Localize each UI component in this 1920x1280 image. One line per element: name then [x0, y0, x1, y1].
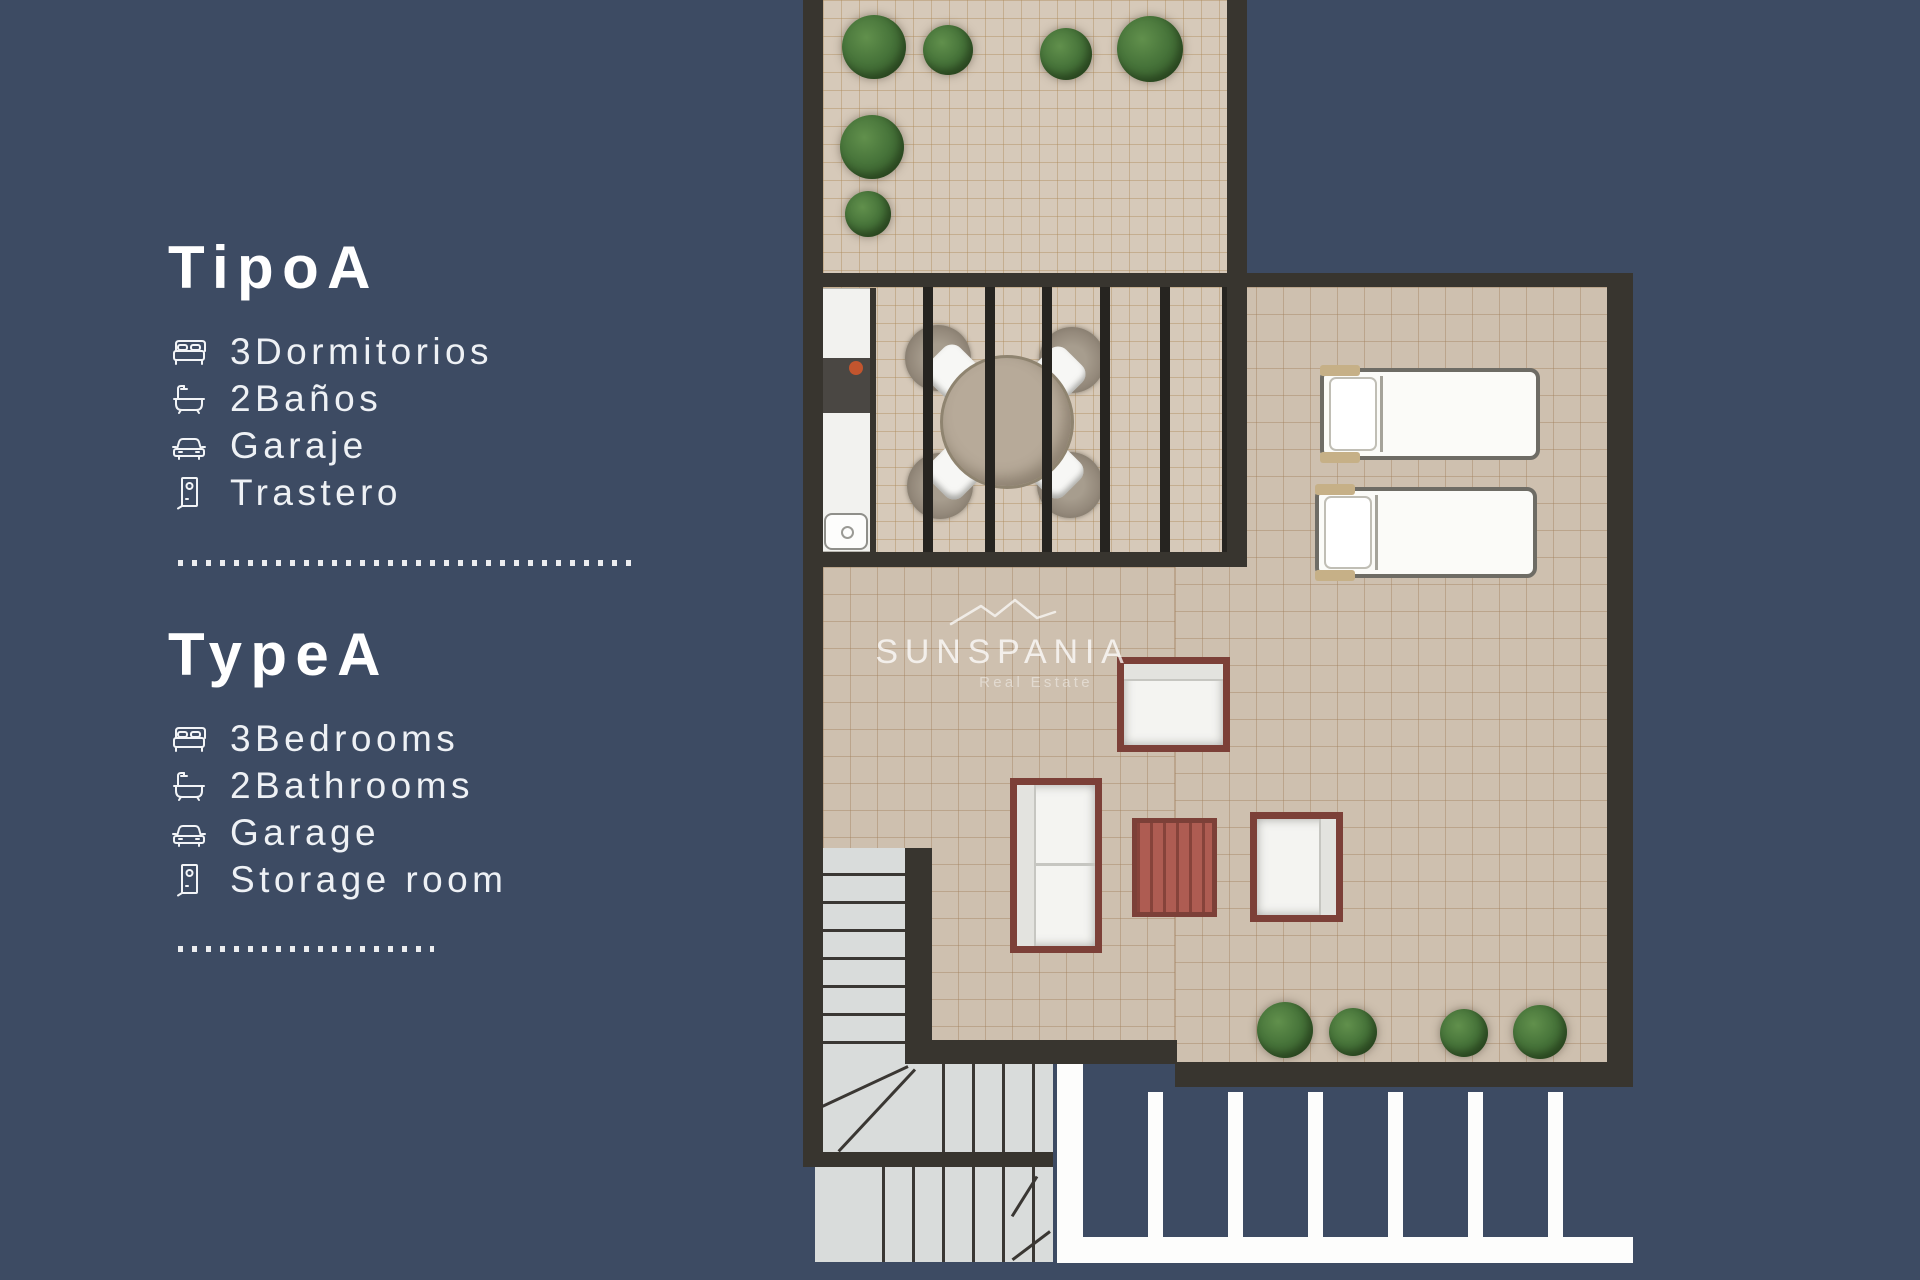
garage-post — [1228, 1092, 1243, 1240]
floor-plan: SUNSPANIA Real Estate — [0, 0, 1920, 1280]
armchair — [1117, 657, 1230, 752]
pergola-slat — [985, 287, 995, 557]
staircase-lower-flight — [815, 1167, 1053, 1262]
garage-post — [1148, 1092, 1163, 1240]
garage-post — [1468, 1092, 1483, 1240]
sun-lounger — [1320, 368, 1540, 460]
pergola-slat — [1100, 287, 1110, 557]
sun-lounger — [1315, 487, 1537, 578]
armchair-backrest — [1319, 819, 1336, 915]
plant — [845, 191, 891, 237]
staircase-winder — [820, 1063, 1053, 1152]
pergola-slat — [1160, 287, 1170, 557]
lounger-headrest — [1324, 496, 1372, 569]
sofa — [1010, 778, 1102, 953]
coffee-table — [1132, 818, 1217, 917]
stair-treads — [855, 1167, 1035, 1262]
kitchen-sink — [824, 513, 868, 550]
lounger-cushion-accent — [1315, 484, 1355, 495]
kitchen-cooktop — [822, 358, 872, 413]
plant — [1440, 1009, 1488, 1057]
pergola-slat — [1042, 287, 1052, 557]
plant — [923, 25, 973, 75]
wall-top — [803, 273, 1633, 287]
wall-left — [803, 0, 823, 1167]
kitchen-partition-wall — [870, 288, 876, 552]
wall-dining-bottom — [803, 552, 1247, 567]
stair-treads — [915, 1063, 1053, 1152]
plant — [1513, 1005, 1567, 1059]
garage-post — [1548, 1092, 1563, 1240]
dining-table — [940, 355, 1074, 489]
lounger-cushion-accent — [1320, 365, 1360, 376]
brochure-page: TipoA 3Dormitorios 2Baños Garaje — [0, 0, 1920, 1280]
garage-outline-vertical — [1057, 1063, 1083, 1263]
plant — [1329, 1008, 1377, 1056]
plant — [1117, 16, 1183, 82]
lounger-divider — [1380, 376, 1383, 452]
cooktop-burner — [849, 361, 863, 375]
wall-right — [1607, 273, 1633, 1087]
garage-outline-bottom — [1057, 1237, 1633, 1263]
staircase-upper-flight — [820, 848, 905, 1063]
armchair-backrest — [1124, 664, 1223, 681]
armchair — [1250, 812, 1343, 922]
plant — [840, 115, 904, 179]
stair-newel-wall — [905, 848, 932, 1048]
plant — [842, 15, 906, 79]
stair-mid-wall — [815, 1152, 1053, 1167]
lounger-headrest — [1329, 377, 1377, 451]
sink-drain — [841, 526, 854, 539]
plant — [1040, 28, 1092, 80]
plant — [1257, 1002, 1313, 1058]
garage-post — [1308, 1092, 1323, 1240]
garage-post — [1388, 1092, 1403, 1240]
lounger-cushion-accent — [1320, 452, 1360, 463]
wall-bottom-left — [905, 1040, 1177, 1064]
lounger-divider — [1375, 495, 1378, 570]
wall-bottom-right — [1175, 1062, 1633, 1087]
lounger-cushion-accent — [1315, 570, 1355, 581]
pergola-slat — [923, 287, 933, 557]
sofa-seat-divider — [1034, 863, 1095, 866]
